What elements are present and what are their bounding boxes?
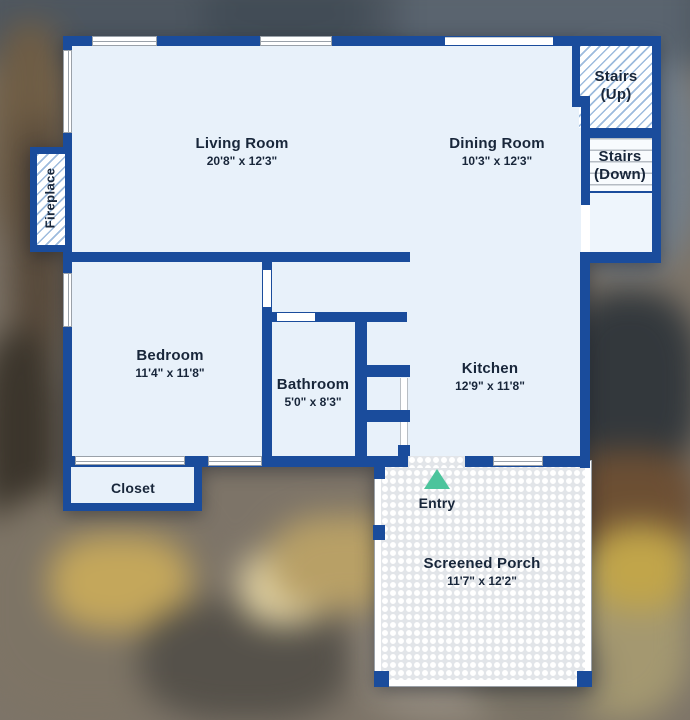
wall-segment [580,252,590,468]
wall-segment [581,128,661,138]
room-dims: 11'4" x 11'8" [135,365,204,381]
closet-sliding-door [75,456,185,465]
wall-segment [194,456,202,511]
porch-post [374,462,385,479]
wall-segment [355,410,410,422]
stairs-down-line1: Stairs [594,148,646,166]
room-name: Kitchen [455,360,525,378]
wall-segment [63,252,410,262]
bedroom-door-opening [263,270,271,307]
room-label-bedroom: Bedroom 11'4" x 11'8" [135,347,204,381]
room-name: Bedroom [135,347,204,365]
room-name: Bathroom [277,376,349,394]
pantry-opening [400,378,408,410]
stairs-landing [590,193,652,252]
wall-segment [355,365,410,377]
room-name: Dining Room [449,135,545,153]
window [493,456,543,466]
entry-text: Entry [419,494,456,512]
closet-text: Closet [111,479,155,497]
label-stairs-down: Stairs (Down) [594,148,646,184]
room-dims: 11'7" x 12'2" [423,573,540,589]
window [208,456,262,466]
bathroom-door-opening [277,313,315,321]
porch-post [374,671,389,687]
screenshot: Living Room 20'8" x 12'3" Dining Room 10… [0,0,690,720]
wall-segment [581,96,590,206]
wall-segment [652,36,661,263]
window [260,36,332,46]
stairs-divider-line [590,191,652,193]
window [63,273,72,327]
room-label-kitchen: Kitchen 12'9" x 11'8" [455,360,525,394]
room-dims: 12'9" x 11'8" [455,378,525,394]
entry-opening [408,456,465,468]
label-fireplace: Fireplace [43,168,58,229]
wall-segment [63,503,202,511]
label-closet: Closet [111,479,155,497]
wall-segment [580,252,661,263]
stairs-up-line1: Stairs [595,68,638,86]
stairs-up-line2: (Up) [595,86,638,104]
room-dims: 20'8" x 12'3" [195,153,288,169]
room-dims: 10'3" x 12'3" [449,153,545,169]
stairs-landing-opening [581,205,590,252]
label-entry: Entry [419,494,456,512]
room-label-bathroom: Bathroom 5'0" x 8'3" [277,376,349,410]
porch-post [577,671,592,687]
entry-marker-icon [424,469,450,489]
label-stairs-up: Stairs (Up) [595,68,638,104]
stairs-down-line2: (Down) [594,166,646,184]
floor-plan: Living Room 20'8" x 12'3" Dining Room 10… [0,0,690,720]
porch-post [373,525,385,540]
pantry-opening [400,422,408,445]
room-label-living: Living Room 20'8" x 12'3" [195,135,288,169]
room-name: Screened Porch [423,555,540,573]
window [92,36,157,46]
room-label-dining: Dining Room 10'3" x 12'3" [449,135,545,169]
dining-top-opening [445,37,553,45]
room-label-porch: Screened Porch 11'7" x 12'2" [423,555,540,589]
room-dims: 5'0" x 8'3" [277,394,349,410]
room-name: Living Room [195,135,288,153]
window [63,50,72,133]
wall-segment [355,312,367,462]
